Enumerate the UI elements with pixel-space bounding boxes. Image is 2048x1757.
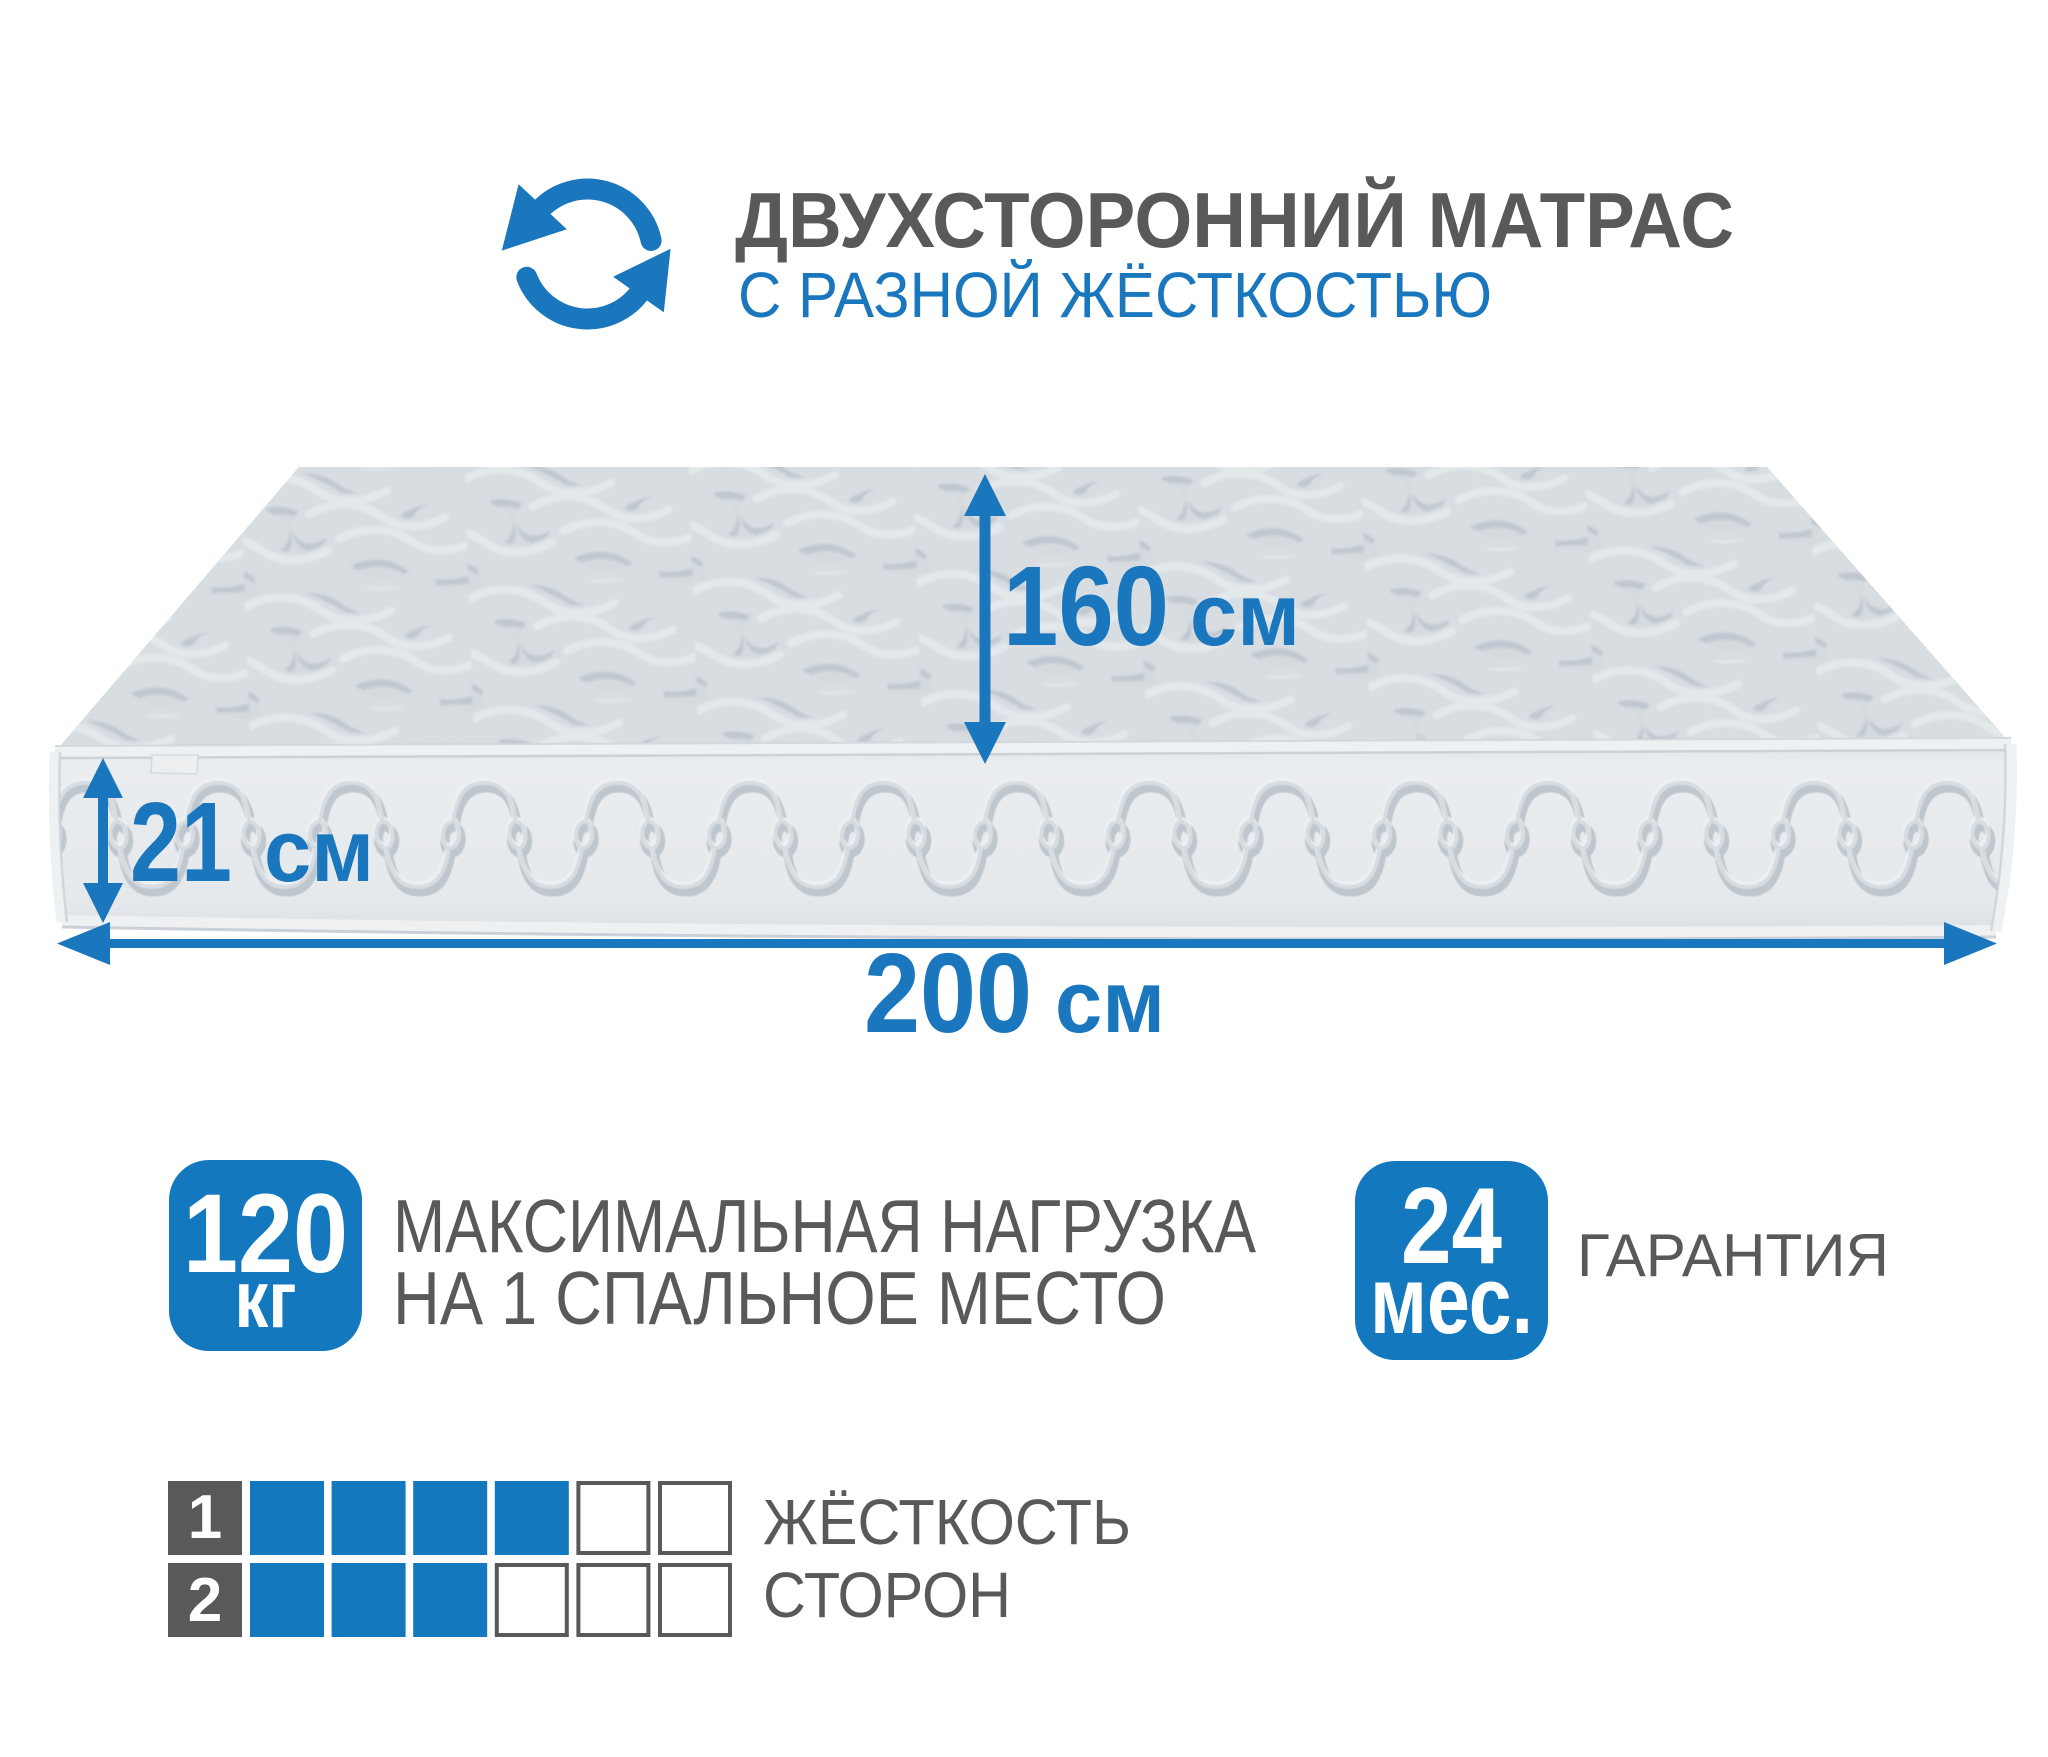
svg-text:160: 160 bbox=[1003, 543, 1169, 669]
svg-text:НА 1 СПАЛЬНОЕ МЕСТО: НА 1 СПАЛЬНОЕ МЕСТО bbox=[393, 1256, 1166, 1340]
svg-text:2: 2 bbox=[188, 1566, 222, 1635]
svg-text:см: см bbox=[1055, 952, 1165, 1051]
svg-text:21: 21 bbox=[130, 779, 232, 905]
svg-text:С РАЗНОЙ ЖЁСТКОСТЬЮ: С РАЗНОЙ ЖЁСТКОСТЬЮ bbox=[738, 258, 1492, 331]
svg-text:ДВУХСТОРОННИЙ МАТРАС: ДВУХСТОРОННИЙ МАТРАС bbox=[735, 176, 1734, 264]
svg-text:см: см bbox=[1190, 565, 1300, 664]
svg-text:кг: кг bbox=[235, 1255, 297, 1345]
svg-text:ЖЁСТКОСТЬ: ЖЁСТКОСТЬ bbox=[763, 1486, 1131, 1558]
svg-text:ГАРАНТИЯ: ГАРАНТИЯ bbox=[1577, 1222, 1889, 1289]
svg-text:СТОРОН: СТОРОН bbox=[763, 1559, 1011, 1631]
svg-text:см: см bbox=[264, 801, 374, 900]
svg-text:мес.: мес. bbox=[1370, 1247, 1533, 1354]
svg-text:1: 1 bbox=[188, 1483, 222, 1552]
svg-text:200: 200 bbox=[864, 930, 1032, 1056]
